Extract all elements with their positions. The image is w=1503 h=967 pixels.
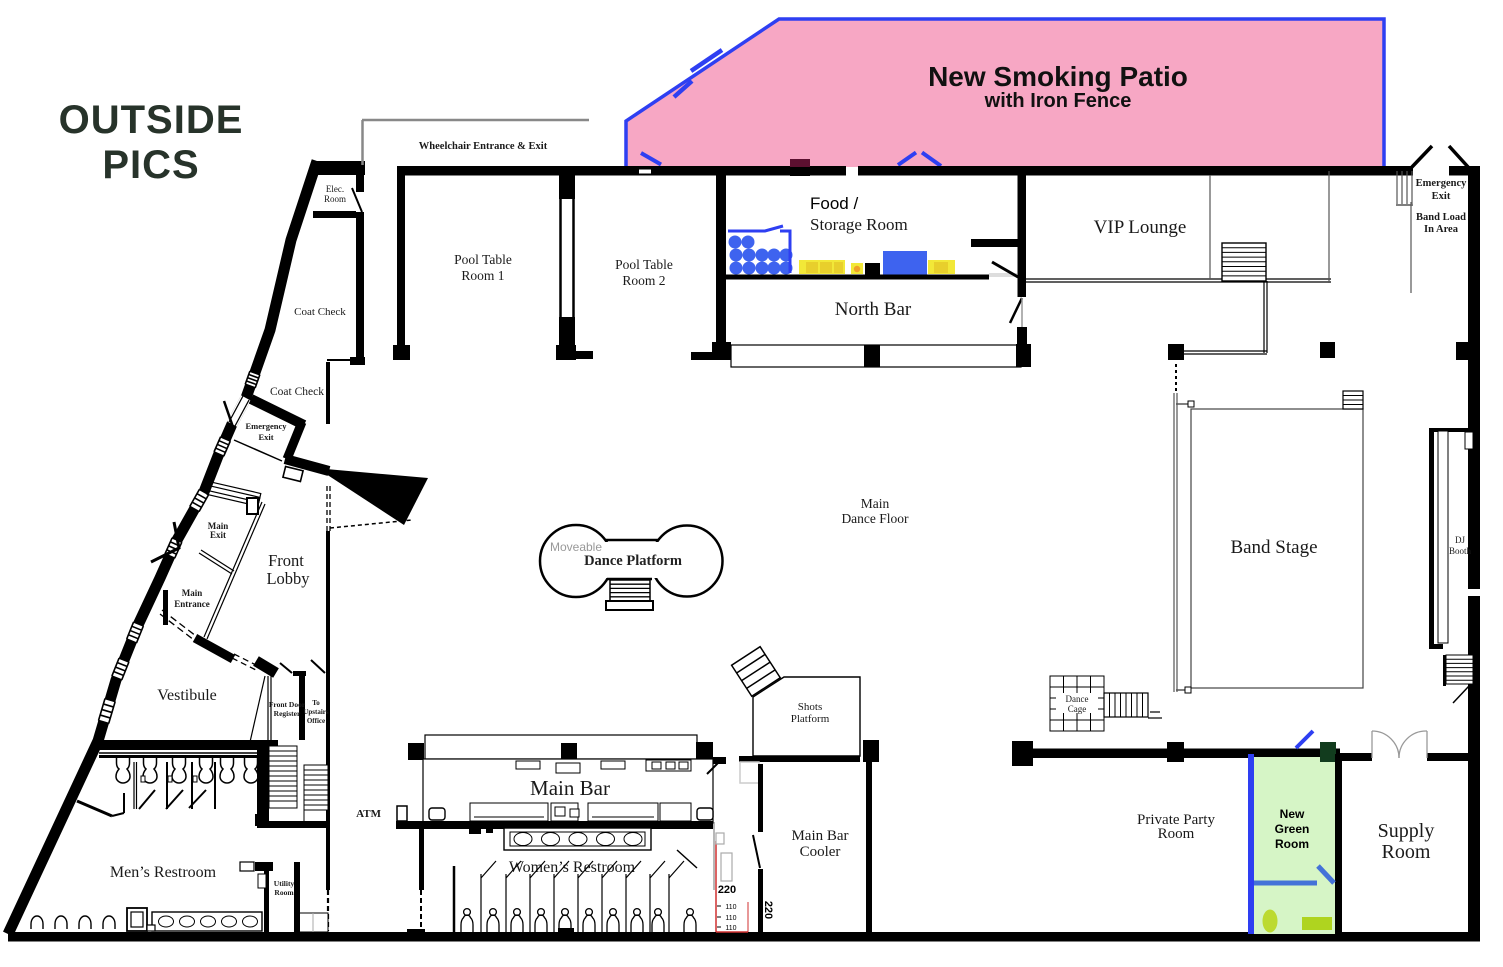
svg-text:Upstairs: Upstairs [303,708,329,716]
svg-text:OUTSIDE: OUTSIDE [59,98,244,142]
svg-text:Shots: Shots [798,701,822,713]
svg-text:Storage Room: Storage Room [810,215,908,234]
svg-text:PICS: PICS [102,143,199,187]
svg-text:Room: Room [324,194,346,204]
svg-text:Wheelchair Entrance & Exit: Wheelchair Entrance & Exit [419,141,548,152]
svg-text:Lobby: Lobby [266,569,310,588]
svg-text:Office: Office [307,717,325,725]
svg-text:Room: Room [274,888,294,897]
svg-text:110: 110 [725,915,736,922]
svg-text:Men’s Restroom: Men’s Restroom [110,864,217,881]
svg-text:220: 220 [718,884,736,896]
svg-text:Cage: Cage [1068,704,1087,714]
svg-text:Dance Platform: Dance Platform [584,553,682,569]
svg-text:Dance Floor: Dance Floor [841,511,909,526]
svg-text:220: 220 [762,901,774,919]
svg-text:110: 110 [725,925,736,932]
svg-text:DJ: DJ [1455,535,1465,545]
svg-text:To: To [312,699,320,707]
svg-text:Emergency: Emergency [1416,178,1467,189]
svg-text:Pool Table: Pool Table [615,257,673,272]
svg-text:Register: Register [274,709,301,718]
svg-text:North Bar: North Bar [835,299,912,320]
svg-text:Moveable: Moveable [550,540,602,554]
svg-text:Emergency: Emergency [245,421,287,431]
svg-text:ATM: ATM [356,808,381,820]
svg-text:Room: Room [1382,841,1431,863]
svg-text:Pool Table: Pool Table [454,252,512,267]
svg-text:Main Bar: Main Bar [530,776,610,800]
svg-text:Platform: Platform [791,713,830,725]
svg-text:Dance: Dance [1066,694,1089,704]
svg-text:Room: Room [1275,837,1309,851]
svg-text:Booth: Booth [1449,546,1472,556]
svg-text:Main: Main [182,588,203,598]
svg-text:Room 2: Room 2 [622,273,665,288]
svg-text:New: New [1280,807,1305,821]
svg-text:Vestibule: Vestibule [157,687,217,704]
svg-text:Front Door: Front Door [269,700,306,709]
svg-text:Band Load: Band Load [1416,212,1466,223]
svg-text:Front: Front [268,551,304,570]
svg-text:Room 1: Room 1 [461,268,504,283]
svg-text:Exit: Exit [1432,191,1451,202]
svg-text:Main: Main [861,496,890,511]
svg-text:110: 110 [725,904,736,911]
svg-text:Coat Check: Coat Check [270,386,324,398]
svg-text:New Smoking Patio: New Smoking Patio [928,61,1188,92]
svg-text:Exit: Exit [258,432,273,442]
svg-text:Utility: Utility [274,879,295,888]
svg-text:Room: Room [1158,826,1195,842]
svg-text:Entrance: Entrance [174,599,210,609]
svg-text:with Iron Fence: with Iron Fence [984,90,1132,112]
svg-text:Coat Check: Coat Check [294,306,346,318]
svg-text:In Area: In Area [1424,224,1459,235]
svg-text:Elec.: Elec. [326,184,344,194]
svg-text:Food /: Food / [810,194,858,213]
svg-text:Supply: Supply [1378,820,1435,842]
svg-text:VIP Lounge: VIP Lounge [1094,217,1187,238]
svg-text:Green: Green [1275,822,1310,836]
svg-text:Exit: Exit [210,530,226,540]
svg-text:Cooler: Cooler [800,844,841,860]
svg-text:Main Bar: Main Bar [791,828,848,844]
svg-text:Band Stage: Band Stage [1230,537,1317,558]
